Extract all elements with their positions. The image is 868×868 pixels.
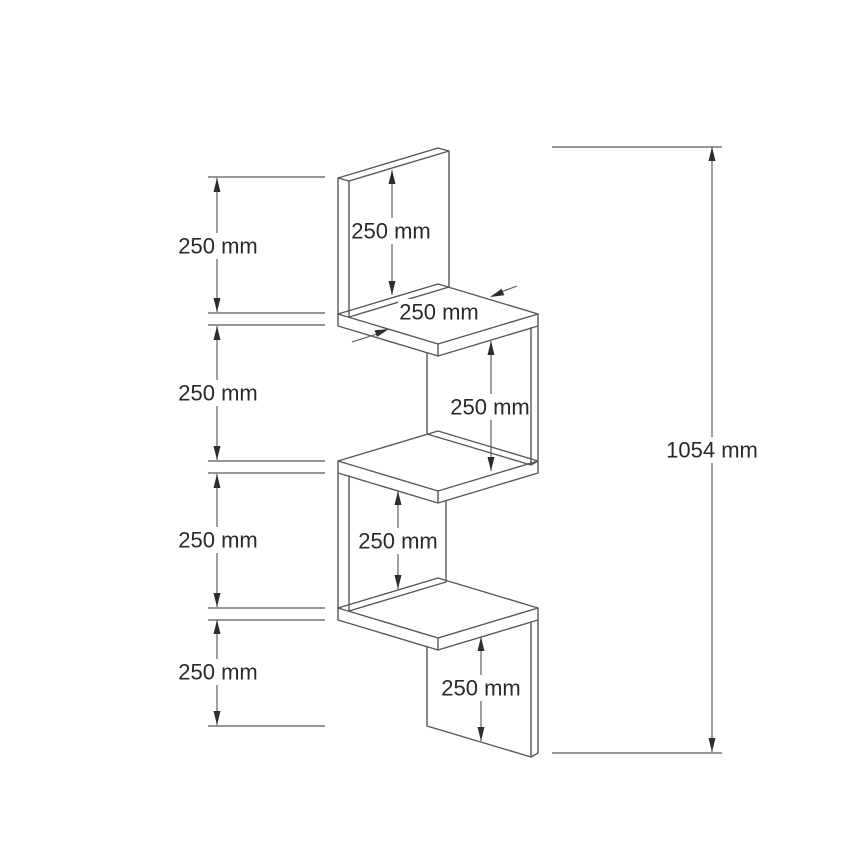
shelf-2-outline (338, 431, 538, 503)
drawing-canvas: 250 mm 250 mm 250 mm 250 mm 250 mm 250 m… (0, 0, 868, 868)
upper-bay-height-dimension: 250 mm (450, 341, 530, 471)
arrowhead-up (214, 620, 221, 634)
arrowhead-down (395, 575, 402, 589)
shelf-depth-label: 250 mm (399, 300, 478, 325)
arrowhead-down (214, 711, 221, 725)
leader-arrowhead-right (490, 289, 504, 297)
leader-line-left (352, 334, 377, 342)
bottom-panel-height-label: 250 mm (441, 676, 520, 701)
arrowhead-up (709, 147, 716, 161)
arrowhead-up (214, 474, 221, 488)
arrowhead-up (395, 491, 402, 505)
dimension-label-left-4: 250 mm (178, 660, 257, 685)
arrowhead-down (478, 727, 485, 741)
corner-shelf-dimension-drawing: 250 mm 250 mm 250 mm 250 mm 250 mm 250 m… (0, 0, 868, 868)
leader-line-right (501, 286, 517, 292)
arrowhead-up (214, 326, 221, 340)
back-panel-height-dimension: 250 mm (351, 170, 430, 295)
upper-bay-height-label: 250 mm (450, 395, 529, 420)
dimension-label-left-2: 250 mm (178, 381, 257, 406)
lower-bay-height-dimension: 250 mm (357, 491, 439, 589)
total-height-dimension: 1054 mm (552, 147, 760, 753)
shelf-3-outline (338, 578, 538, 650)
lower-bay-height-label: 250 mm (358, 529, 437, 554)
arrowhead-down (214, 593, 221, 607)
dimension-label-left-1: 250 mm (178, 234, 257, 259)
total-height-label: 1054 mm (666, 438, 758, 463)
shelf-depth-dimension: 250 mm (352, 286, 517, 342)
arrowhead-up (488, 341, 495, 355)
arrowhead-up (389, 170, 396, 184)
back-panel-height-label: 250 mm (351, 219, 430, 244)
arrowhead-down (488, 457, 495, 471)
leader-arrowhead-left (375, 329, 389, 337)
arrowhead-down (214, 446, 221, 460)
bottom-panel-height-dimension: 250 mm (440, 637, 522, 741)
arrowhead-up (478, 637, 485, 651)
left-dimension-chain: 250 mm 250 mm 250 mm 250 mm (177, 177, 325, 726)
arrowhead-up (214, 178, 221, 192)
arrowhead-down (389, 281, 396, 295)
arrowhead-down (709, 738, 716, 752)
arrowhead-down (214, 298, 221, 312)
dimension-label-left-3: 250 mm (178, 528, 257, 553)
